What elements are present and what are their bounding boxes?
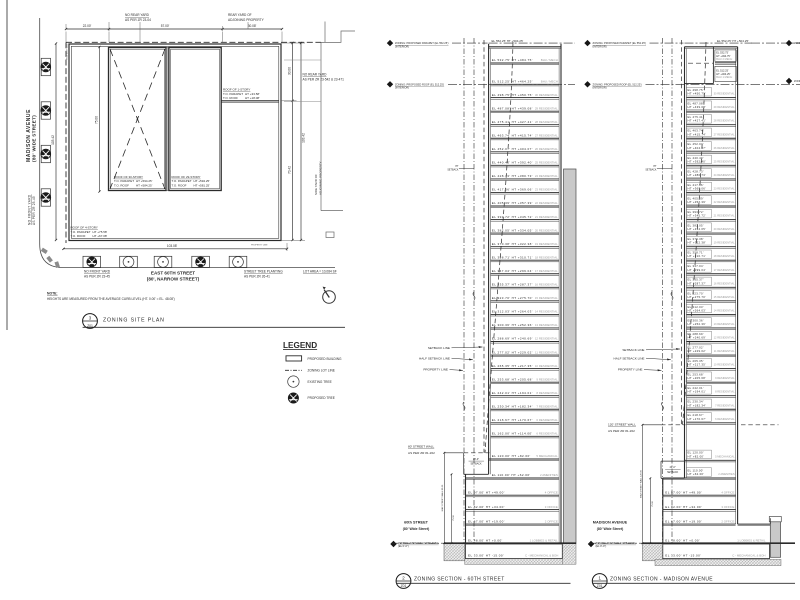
svg-text:2 OFFICE: 2 OFFICE [545,519,558,523]
svg-text:13 RESIDENTIAL: 13 RESIDENTIAL [714,322,736,326]
svg-text:25 RESIDENTIAL: 25 RESIDENTIAL [714,159,736,163]
svg-text:EL 323.70' HT +275.70': EL 323.70' HT +275.70' [492,296,533,300]
svg-text:SETBACK: SETBACK [667,471,679,474]
svg-text:MADISON AVENUE: MADISON AVENUE [593,521,628,525]
svg-text:16 RESIDENTIAL: 16 RESIDENTIAL [535,283,558,287]
svg-text:EL 33.00' HT -15.00': EL 33.00' HT -15.00' [468,553,504,557]
svg-text:EL 405.39' HT +357.39': EL 405.39' HT +357.39' [492,201,533,205]
svg-text:EAST 60TH STREET: EAST 60TH STREET [151,271,195,276]
svg-text:ADJOINING PROPERTY: ADJOINING PROPERTY [319,161,323,195]
svg-text:75.00: 75.00 [453,514,455,520]
svg-text:22 RESIDENTIAL: 22 RESIDENTIAL [714,200,736,204]
svg-text:HT +264.03': HT +264.03' [688,308,707,312]
svg-text:20 RESIDENTIAL: 20 RESIDENTIAL [535,228,558,232]
svg-text:12 RESIDENTIAL: 12 RESIDENTIAL [714,336,736,340]
svg-text:HT +464.25': HT +464.25' [716,72,731,76]
svg-text:7 RESIDENTIAL: 7 RESIDENTIAL [536,404,558,408]
svg-text:30.00: 30.00 [288,67,292,75]
svg-text:AS PER ZR 23-45: AS PER ZR 23-45 [84,274,110,278]
svg-text:AS PER ZR 23-542 & 23-471: AS PER ZR 23-542 & 23-471 [303,77,345,81]
svg-text:(INTERIOR): (INTERIOR) [395,44,409,48]
svg-text:80' STREET WALL: 80' STREET WALL [408,445,434,449]
svg-text:1 LOBBIES & RETAIL: 1 LOBBIES & RETAIL [530,538,559,542]
svg-text:HT +439.08': HT +439.08' [688,105,707,109]
svg-text:EL 277.02' HT +229.02': EL 277.02' HT +229.02' [492,350,533,354]
svg-text:HALF SETBACK LINE: HALF SETBACK LINE [614,356,645,360]
svg-text:SETBACK: SETBACK [470,463,482,466]
svg-text:11 RESIDENTIAL: 11 RESIDENTIAL [535,350,558,354]
svg-text:30.08': 30.08' [248,24,257,28]
svg-text:25 RESIDENTIAL: 25 RESIDENTIAL [535,161,558,165]
svg-text:EL 532.75' HT +484.75': EL 532.75' HT +484.75' [492,58,533,62]
svg-text:22 RESIDENTIAL: 22 RESIDENTIAL [535,201,558,205]
svg-text:EL 265.35' HT +217.35': EL 265.35' HT +217.35' [492,364,533,368]
svg-text:(EL 0'-0"): (EL 0'-0") [596,544,607,548]
svg-text:9 RESIDENTIAL: 9 RESIDENTIAL [715,376,735,380]
svg-text:ZONING: ZONING [794,79,800,83]
svg-text:ZONING: AVERAGE CURB LEVEL: ZONING: AVERAGE CURB LEVEL [398,541,439,545]
svg-text:SETBACK: SETBACK [645,168,657,171]
svg-text:PROPOSED TREE: PROPOSED TREE [308,396,335,400]
svg-text:HT +182.34': HT +182.34' [688,403,707,407]
svg-text:HT +62.00': HT +62.00' [688,472,705,476]
svg-text:2 AMENITIES: 2 AMENITIES [540,473,558,477]
svg-text:21 RESIDENTIAL: 21 RESIDENTIAL [714,214,736,218]
svg-text:HT +450.75': HT +450.75' [688,92,707,96]
svg-text:75.00: 75.00 [652,500,654,506]
svg-text:T.O. ROOF: T.O. ROOF [114,183,129,187]
svg-text:(80' WIDE STREET): (80' WIDE STREET) [32,115,37,162]
svg-text:PROPERTY LINE: PROPERTY LINE [618,368,643,372]
svg-text:21 RESIDENTIAL: 21 RESIDENTIAL [535,215,558,219]
svg-text:EL 218.67' HT +170.67': EL 218.67' HT +170.67' [492,418,533,422]
svg-text:ZONING: AVERAGE CURB LEVEL: ZONING: AVERAGE CURB LEVEL [596,541,637,545]
svg-text:EL 48.00' HT +0.00': EL 48.00' HT +0.00' [665,538,700,542]
svg-text:EL 428.73' HT +380.73': EL 428.73' HT +380.73' [492,174,533,178]
svg-text:22.00': 22.00' [83,24,92,28]
svg-text:EL 417.06' HT +369.06': EL 417.06' HT +369.06' [492,188,533,192]
svg-text:EL 552.25' HT +504.25': EL 552.25' HT +504.25' [492,39,524,43]
svg-text:EL 347.04' HT +299.04': EL 347.04' HT +299.04' [492,269,533,273]
svg-text:HT +380.73': HT +380.73' [688,173,707,177]
svg-text:18 RESIDENTIAL: 18 RESIDENTIAL [714,254,736,258]
svg-text:HT +392.40': HT +392.40' [688,159,707,163]
svg-text:SETBACK: SETBACK [447,168,459,171]
svg-text:PROPERTY LINE: PROPERTY LINE [423,368,448,372]
svg-text:1 LOBBIES & RETAIL: 1 LOBBIES & RETAIL [737,538,766,542]
svg-text:HT +415.74': HT +415.74' [688,132,707,136]
svg-text:EL 48.00' HT +0.00': EL 48.00' HT +0.00' [468,538,503,542]
svg-text:HT +275.70': HT +275.70' [688,295,707,299]
svg-text:14 RESIDENTIAL: 14 RESIDENTIAL [535,310,558,314]
svg-text:BHU / MECH: BHU / MECH [541,80,558,84]
svg-text:103.42: 103.42 [51,135,55,145]
svg-text:10 RESIDENTIAL: 10 RESIDENTIAL [535,364,558,368]
svg-text:28 RESIDENTIAL: 28 RESIDENTIAL [714,119,736,123]
svg-text:EL 335.37' HT +287.37': EL 335.37' HT +287.37' [492,283,533,287]
svg-text:23 RESIDENTIAL: 23 RESIDENTIAL [714,186,736,190]
svg-text:20'-0": 20'-0" [473,458,479,461]
svg-text:HT +581.25': HT +581.25' [194,183,211,187]
svg-text:(INTERIOR): (INTERIOR) [593,44,607,48]
svg-text:8 RESIDENTIAL: 8 RESIDENTIAL [715,390,735,394]
svg-text:EL 512.25' HT +464.25': EL 512.25' HT +464.25' [492,80,533,84]
svg-text:EL 498.75' HT +450.75': EL 498.75' HT +450.75' [492,93,533,97]
svg-text:30 RESIDENTIAL: 30 RESIDENTIAL [714,92,736,96]
svg-text:(80' Wide Street): (80' Wide Street) [597,527,623,531]
svg-text:EL 300.36' HT +252.36': EL 300.36' HT +252.36' [492,323,533,327]
svg-text:7 RESIDENTIAL: 7 RESIDENTIAL [715,403,735,407]
svg-text:17 RESIDENTIAL: 17 RESIDENTIAL [714,268,736,272]
svg-text:EL 97.00' HT +49.00': EL 97.00' HT +49.00' [468,490,505,494]
svg-text:19 RESIDENTIAL: 19 RESIDENTIAL [714,241,736,245]
svg-text:EL 475.41' HT +427.41': EL 475.41' HT +427.41' [492,120,533,124]
svg-text:2 AMENITIES: 2 AMENITIES [718,472,735,476]
svg-text:(80', NARROW STREET): (80', NARROW STREET) [147,277,200,282]
svg-text:24 RESIDENTIAL: 24 RESIDENTIAL [535,174,558,178]
svg-text:29 RESIDENTIAL: 29 RESIDENTIAL [535,106,558,110]
svg-text:BHU / MECH: BHU / MECH [541,58,558,62]
svg-text:EL 440.40' HT +392.40': EL 440.40' HT +392.40' [492,161,533,165]
svg-text:LEGEND: LEGEND [283,341,317,350]
svg-text:EL 552.25' HT +504.25': EL 552.25' HT +504.25' [717,39,749,43]
svg-text:11 RESIDENTIAL: 11 RESIDENTIAL [714,349,735,353]
svg-text:19 RESIDENTIAL: 19 RESIDENTIAL [535,242,558,246]
svg-text:BHU 1 MECH: BHU 1 MECH [716,75,732,79]
svg-text:4 OFFICE: 4 OFFICE [545,490,558,494]
svg-text:24 RESIDENTIAL: 24 RESIDENTIAL [714,173,736,177]
svg-text:NO REAR YARD: NO REAR YARD [125,13,150,17]
svg-text:EL 463.74' HT +415.74': EL 463.74' HT +415.74' [492,133,533,137]
svg-text:4 OFFICE: 4 OFFICE [721,490,734,494]
svg-text:HT +334.05': HT +334.05' [688,227,707,231]
svg-text:HT +217.35': HT +217.35' [688,363,707,367]
svg-text:AS PER ZR 81-262: AS PER ZR 81-262 [408,451,435,455]
svg-text:10 RESIDENTIAL: 10 RESIDENTIAL [714,363,736,367]
svg-text:9 RESIDENTIAL: 9 RESIDENTIAL [536,377,558,381]
svg-text:MAX STREET WALL 85.00: MAX STREET WALL 85.00 [441,484,444,511]
svg-text:SETBACK LINE: SETBACK LINE [622,348,644,352]
svg-text:12 RESIDENTIAL: 12 RESIDENTIAL [535,337,558,341]
svg-text:LOT AREA = 10,084 SF: LOT AREA = 10,084 SF [303,270,337,274]
svg-text:120' STREET WALL: 120' STREET WALL [608,423,636,427]
svg-text:EL 382.05' HT +334.05': EL 382.05' HT +334.05' [492,228,533,232]
svg-text:HT +82.00': HT +82.00' [688,454,705,458]
svg-text:HT +18.08': HT +18.08' [245,96,260,100]
svg-text:5 MECHANICAL: 5 MECHANICAL [536,454,558,458]
svg-text:ROOF OF 30-STORY: ROOF OF 30-STORY [114,175,143,179]
svg-text:HT +299.04': HT +299.04' [688,268,707,272]
svg-text:14 RESIDENTIAL: 14 RESIDENTIAL [714,308,736,312]
svg-text:NO REAR YARD: NO REAR YARD [303,73,328,77]
svg-text:17 RESIDENTIAL: 17 RESIDENTIAL [535,269,558,273]
svg-text:ZONING: ZONING [794,41,800,45]
svg-text:HALF SETBACK LINE: HALF SETBACK LINE [419,356,450,360]
svg-text:70.42: 70.42 [288,166,292,174]
svg-text:ZONING SECTION - MADISON AVENU: ZONING SECTION - MADISON AVENUE [610,577,713,583]
svg-text:EL 67.00' HT +19.00': EL 67.00' HT +19.00' [665,519,702,523]
svg-text:T.O. ROOF: T.O. ROOF [71,234,86,238]
svg-text:EL 393.72' HT +345.72': EL 393.72' HT +345.72' [492,215,533,219]
svg-text:(EL 0'-0"): (EL 0'-0") [398,544,409,548]
svg-text:EXISTING TREE: EXISTING TREE [308,380,332,384]
svg-text:STREET TREE PLANTING: STREET TREE PLANTING [244,270,283,274]
svg-text:EL 162.00' HT +114.00': EL 162.00' HT +114.00' [492,432,533,436]
svg-text:C - MECHANICAL & BOH: C - MECHANICAL & BOH [732,553,765,557]
svg-text:HT +287.37': HT +287.37' [688,281,707,285]
svg-text:PROPERTY LINE: PROPERTY LINE [66,43,68,60]
svg-text:30 RESIDENTIAL: 30 RESIDENTIAL [535,93,558,97]
svg-text:HT +427.41': HT +427.41' [688,119,707,123]
svg-text:T.O. ROOF: T.O. ROOF [223,96,238,100]
svg-text:HT +252.36': HT +252.36' [688,322,707,326]
svg-text:EL 82.00' HT +34.00': EL 82.00' HT +34.00' [468,505,505,509]
svg-text:EL 288.69' HT +240.69': EL 288.69' HT +240.69' [492,337,533,341]
svg-text:103.08': 103.08' [167,244,178,248]
svg-text:EL 97.00' HT +49.00': EL 97.00' HT +49.00' [665,490,702,494]
svg-text:3 OFFICE: 3 OFFICE [545,505,558,509]
svg-text:ZONING SECTION - 60TH STREET: ZONING SECTION - 60TH STREET [414,577,505,583]
svg-text:EL 452.07' HT +404.07': EL 452.07' HT +404.07' [492,147,533,151]
svg-text:6 RESIDENTIAL: 6 RESIDENTIAL [715,417,735,421]
svg-text:SETBACK LINE: SETBACK LINE [428,346,450,350]
svg-text:EL 33.00' HT -15.00': EL 33.00' HT -15.00' [665,553,701,557]
svg-text:EL 242.01' HT +194.01': EL 242.01' HT +194.01' [492,391,533,395]
svg-text:EL 358.71' HT +310.71': EL 358.71' HT +310.71' [492,255,533,259]
svg-text:HT +240.69': HT +240.69' [688,336,707,340]
svg-text:(80' Wide Street): (80' Wide Street) [403,527,429,531]
svg-text:HT +322.38': HT +322.38' [688,241,707,245]
svg-text:SIDE YARD OF: SIDE YARD OF [314,174,318,195]
svg-text:29 RESIDENTIAL: 29 RESIDENTIAL [714,105,736,109]
svg-text:ROOF OF 4-STORY: ROOF OF 4-STORY [71,226,98,230]
svg-text:EL 312.03' HT +264.03': EL 312.03' HT +264.03' [492,310,533,314]
svg-text:ROOF OF 29-STORY: ROOF OF 29-STORY [172,175,201,179]
svg-text:HT +67.08': HT +67.08' [93,234,108,238]
svg-text:(INTERIOR): (INTERIOR) [593,86,607,90]
svg-text:6 RESIDENTIAL: 6 RESIDENTIAL [536,432,558,436]
svg-text:16 RESIDENTIAL: 16 RESIDENTIAL [714,281,736,285]
svg-text:PROPERTY LINE: PROPERTY LINE [251,245,268,247]
svg-text:HT +584.25': HT +584.25' [136,183,153,187]
svg-text:103.42: 103.42 [302,133,306,143]
svg-text:HT +194.01': HT +194.01' [688,390,707,394]
svg-text:6 RESIDENTIAL: 6 RESIDENTIAL [536,418,558,422]
svg-text:EL 253.68' HT +205.68': EL 253.68' HT +205.68' [492,377,533,381]
svg-text:AS PER ZR 81-262: AS PER ZR 81-262 [608,429,635,433]
svg-text:C - MECHANICAL & BOH: C - MECHANICAL & BOH [525,553,558,557]
svg-text:Z01: Z01 [597,584,603,588]
svg-text:EL 487.08' HT +439.08': EL 487.08' HT +439.08' [492,106,533,110]
svg-text:26 RESIDENTIAL: 26 RESIDENTIAL [714,146,736,150]
svg-text:EL 120.00' HT +82.00': EL 120.00' HT +82.00' [492,454,531,458]
svg-text:13 RESIDENTIAL: 13 RESIDENTIAL [535,323,558,327]
svg-text:BHU 2 MECH: BHU 2 MECH [716,57,732,61]
svg-text:26 RESIDENTIAL: 26 RESIDENTIAL [535,147,558,151]
svg-text:20 RESIDENTIAL: 20 RESIDENTIAL [714,227,736,231]
svg-text:ZONING LOT LINE: ZONING LOT LINE [308,369,335,373]
svg-text:60th STREET: 60th STREET [404,521,429,525]
svg-text:15 RESIDENTIAL: 15 RESIDENTIAL [714,295,736,299]
svg-text:REAR YARD OF: REAR YARD OF [228,13,252,17]
svg-text:2 OFFICE: 2 OFFICE [721,519,734,523]
svg-text:HT +494.75': HT +494.75' [716,54,731,58]
svg-text:27 RESIDENTIAL: 27 RESIDENTIAL [714,132,736,136]
svg-text:AS PER ZR 23-04: AS PER ZR 23-04 [125,18,151,22]
svg-text:28 RESIDENTIAL: 28 RESIDENTIAL [535,120,558,124]
svg-text:HEIGHTS ARE MEASURED FROM THE: HEIGHTS ARE MEASURED FROM THE AVERAGE CU… [47,297,175,301]
svg-text:NO FRONT YARD: NO FRONT YARD [84,270,111,274]
svg-text:HT +345.72': HT +345.72' [688,214,707,218]
svg-text:20'-0": 20'-0" [670,466,676,469]
svg-text:15 RESIDENTIAL: 15 RESIDENTIAL [535,296,558,300]
svg-text:57.00': 57.00' [161,24,170,28]
svg-text:EL 110.00' HT +62.00': EL 110.00' HT +62.00' [492,473,531,477]
svg-text:HT +369.06': HT +369.06' [688,186,707,190]
svg-text:MAX STREET WALL 120.00: MAX STREET WALL 120.00 [639,469,642,497]
svg-text:AS PER ZR 23-45: AS PER ZR 23-45 [32,196,36,225]
svg-text:HT +357.39': HT +357.39' [688,200,707,204]
svg-text:75.00: 75.00 [95,116,99,124]
svg-text:HT +170.67': HT +170.67' [688,417,707,421]
svg-text:27 RESIDENTIAL: 27 RESIDENTIAL [535,133,558,137]
svg-text:T.O. ROOF: T.O. ROOF [172,183,187,187]
svg-text:NO FRONT YARD: NO FRONT YARD [28,194,32,225]
svg-text:ADJOINING PROPERTY: ADJOINING PROPERTY [228,18,265,22]
svg-text:HT +229.02': HT +229.02' [688,349,707,353]
svg-text:HT +404.07': HT +404.07' [688,146,707,150]
svg-text:EL 82.00' HT +34.00': EL 82.00' HT +34.00' [665,505,702,509]
svg-text:3 OFFICE: 3 OFFICE [721,505,734,509]
svg-text:ZONING SITE PLAN: ZONING SITE PLAN [103,318,165,324]
svg-text:5 MECHANICAL: 5 MECHANICAL [715,454,735,458]
svg-text:HT +310.71': HT +310.71' [688,254,707,258]
svg-text:NOTE:: NOTE: [47,292,58,296]
svg-text:HT +205.68': HT +205.68' [688,376,707,380]
svg-text:EL 67.00' HT +19.00': EL 67.00' HT +19.00' [468,519,505,523]
svg-text:PROPOSED BUILDING: PROPOSED BUILDING [308,357,343,361]
svg-text:23 RESIDENTIAL: 23 RESIDENTIAL [535,188,558,192]
svg-text:EL 230.34' HT +182.34': EL 230.34' HT +182.34' [492,404,533,408]
svg-text:AS PER ZR 26-41: AS PER ZR 26-41 [244,274,270,278]
svg-text:Z01: Z01 [401,584,407,588]
svg-text:8 RESIDENTIAL: 8 RESIDENTIAL [536,391,558,395]
svg-text:18 RESIDENTIAL: 18 RESIDENTIAL [535,255,558,259]
svg-text:EL 370.38' HT +322.38': EL 370.38' HT +322.38' [492,242,533,246]
svg-text:(INTERIOR): (INTERIOR) [395,86,409,90]
